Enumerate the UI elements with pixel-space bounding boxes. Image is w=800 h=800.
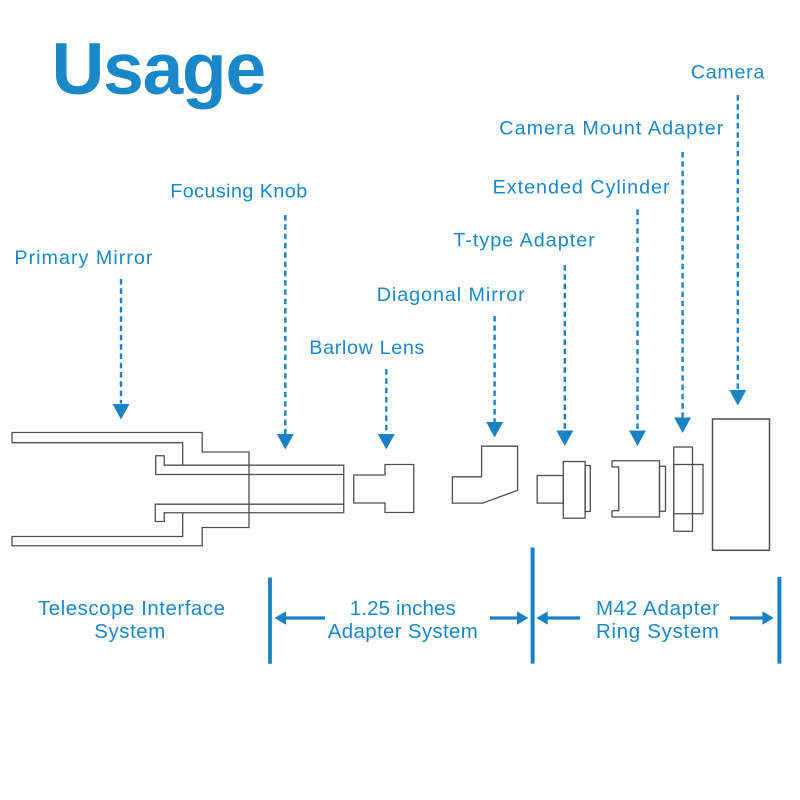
svg-text:Ring System: Ring System bbox=[596, 620, 719, 643]
svg-text:Camera: Camera bbox=[691, 62, 765, 84]
svg-text:Barlow Lens: Barlow Lens bbox=[309, 337, 424, 359]
svg-text:Primary Mirror: Primary Mirror bbox=[14, 247, 152, 269]
svg-text:Adapter System: Adapter System bbox=[328, 620, 478, 643]
svg-text:Camera Mount Adapter: Camera Mount Adapter bbox=[499, 118, 723, 140]
svg-text:Diagonal Mirror: Diagonal Mirror bbox=[377, 284, 525, 306]
svg-text:Telescope Interface: Telescope Interface bbox=[38, 597, 225, 620]
svg-text:System: System bbox=[94, 620, 165, 643]
svg-text:1.25 inches: 1.25 inches bbox=[350, 597, 456, 620]
svg-text:T-type Adapter: T-type Adapter bbox=[453, 230, 595, 252]
svg-text:Extended Cylinder: Extended Cylinder bbox=[493, 177, 670, 199]
svg-text:Usage: Usage bbox=[52, 29, 267, 110]
svg-text:Focusing Knob: Focusing Knob bbox=[170, 180, 307, 202]
svg-text:M42 Adapter: M42 Adapter bbox=[596, 597, 719, 620]
